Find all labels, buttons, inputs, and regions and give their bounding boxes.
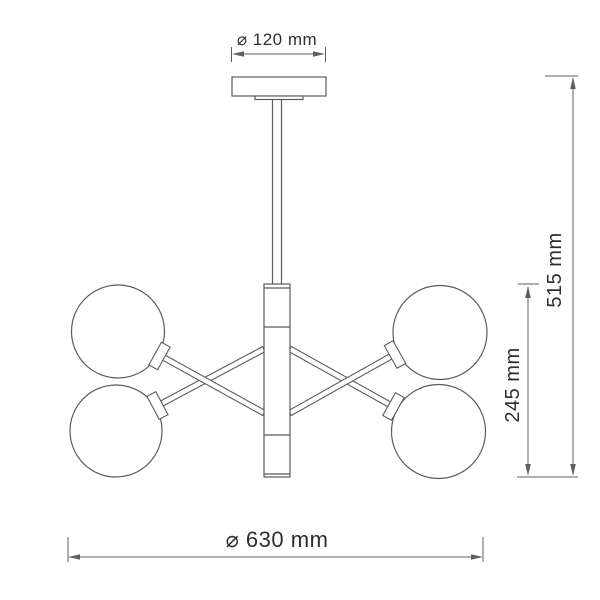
chandelier-dimension-diagram: ⌀ 120 mm 515 mm 245 mm ⌀ 630 mm	[0, 0, 600, 600]
arm-upper-right	[289, 352, 397, 416]
arrow-left-icon	[232, 51, 244, 57]
central-body	[264, 284, 290, 477]
arrow-up-icon	[570, 77, 576, 89]
suspension-rod	[273, 97, 282, 285]
diagram-svg: ⌀ 120 mm 515 mm 245 mm ⌀ 630 mm	[0, 0, 600, 600]
dimension-body-height	[517, 284, 578, 477]
globe-upper-right	[393, 286, 487, 380]
arrow-up-icon	[525, 286, 531, 298]
arm-upper-left	[158, 353, 266, 416]
label-body-height: 245 mm	[502, 347, 524, 422]
arrow-left-icon	[68, 554, 80, 560]
arm-lower-right	[289, 347, 396, 410]
ceiling-canopy	[232, 77, 326, 100]
globe-lower-right	[392, 385, 486, 479]
label-fixture-diameter: ⌀ 630 mm	[226, 527, 329, 552]
dimension-canopy-diameter	[232, 47, 326, 62]
arm-lower-left	[156, 347, 265, 409]
arrow-down-icon	[570, 464, 576, 476]
label-total-height: 515 mm	[544, 232, 566, 307]
label-canopy-diameter: ⌀ 120 mm	[237, 30, 317, 49]
arrow-right-icon	[313, 51, 325, 57]
arrow-right-icon	[471, 554, 483, 560]
arrow-down-icon	[525, 464, 531, 476]
